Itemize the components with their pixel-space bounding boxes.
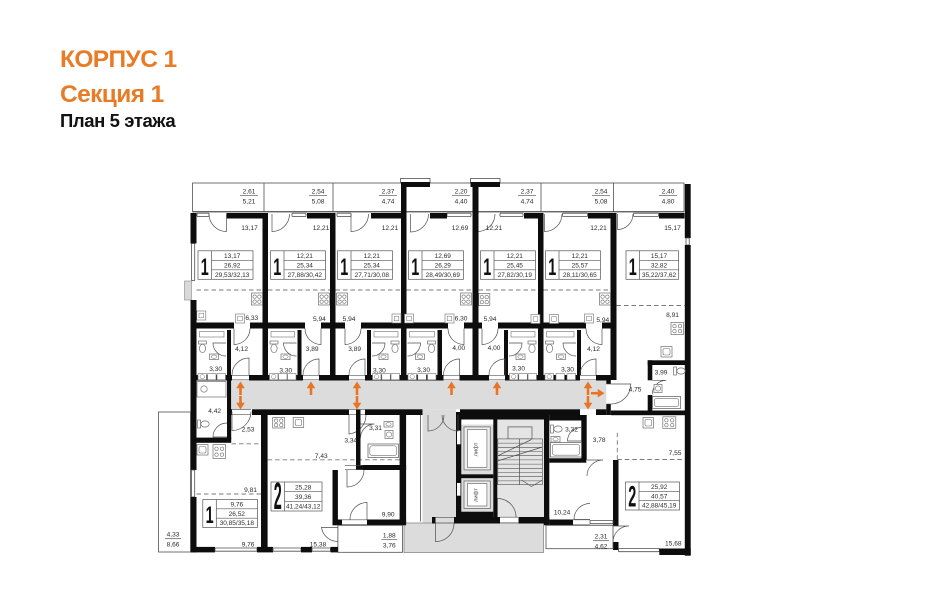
svg-text:1: 1	[483, 254, 491, 281]
svg-text:12,21: 12,21	[297, 253, 314, 260]
svg-text:2,61: 2,61	[243, 189, 256, 196]
svg-text:3,30: 3,30	[209, 366, 222, 373]
svg-text:2,53: 2,53	[242, 427, 255, 434]
svg-text:2,54: 2,54	[312, 189, 325, 196]
svg-text:26,29: 26,29	[435, 262, 452, 269]
svg-text:12,21: 12,21	[313, 225, 330, 232]
svg-text:4,12: 4,12	[235, 346, 248, 353]
svg-text:10,24: 10,24	[554, 510, 571, 517]
svg-text:4,62: 4,62	[595, 544, 608, 551]
svg-text:3,31: 3,31	[369, 425, 382, 432]
svg-text:3,30: 3,30	[561, 366, 574, 373]
svg-text:25,45: 25,45	[507, 262, 524, 269]
svg-text:лифт: лифт	[474, 442, 480, 456]
svg-text:2: 2	[274, 476, 282, 518]
svg-text:4,33: 4,33	[167, 532, 180, 539]
svg-text:25,57: 25,57	[572, 262, 589, 269]
svg-text:4,12: 4,12	[587, 346, 600, 353]
svg-text:15,17: 15,17	[664, 225, 681, 232]
svg-text:41,24/43,12: 41,24/43,12	[286, 504, 321, 511]
svg-text:3,34: 3,34	[344, 438, 357, 445]
svg-text:9,81: 9,81	[244, 487, 257, 494]
svg-text:5,94: 5,94	[596, 317, 609, 324]
svg-text:4,74: 4,74	[382, 199, 395, 206]
svg-text:13,17: 13,17	[241, 225, 258, 232]
svg-text:2,31: 2,31	[595, 534, 608, 541]
svg-text:4,40: 4,40	[455, 199, 468, 206]
svg-text:3,99: 3,99	[655, 370, 668, 377]
svg-text:29,53/32,13: 29,53/32,13	[215, 272, 250, 279]
svg-text:2: 2	[628, 481, 636, 514]
svg-text:27,88/30,42: 27,88/30,42	[288, 272, 323, 279]
svg-text:15,68: 15,68	[665, 541, 682, 548]
svg-text:4,74: 4,74	[521, 199, 534, 206]
svg-text:7,55: 7,55	[669, 450, 682, 457]
svg-text:2,54: 2,54	[595, 189, 608, 196]
svg-text:1: 1	[629, 254, 637, 281]
svg-text:3,78: 3,78	[593, 437, 606, 444]
svg-text:1: 1	[411, 254, 419, 281]
svg-text:2,37: 2,37	[521, 189, 534, 196]
svg-text:1: 1	[548, 254, 556, 281]
svg-text:1,88: 1,88	[383, 533, 396, 540]
svg-text:4,00: 4,00	[488, 345, 501, 352]
svg-text:3,30: 3,30	[417, 367, 430, 374]
svg-text:3,89: 3,89	[348, 346, 361, 353]
svg-text:5,08: 5,08	[595, 199, 608, 206]
svg-text:9,76: 9,76	[230, 501, 243, 508]
svg-text:12,69: 12,69	[452, 225, 469, 232]
svg-text:9,90: 9,90	[382, 512, 395, 519]
svg-text:25,34: 25,34	[364, 262, 381, 269]
svg-text:3,30: 3,30	[512, 366, 525, 373]
svg-text:2,20: 2,20	[455, 189, 468, 196]
svg-text:1: 1	[201, 254, 209, 281]
svg-text:12,21: 12,21	[486, 225, 503, 232]
svg-text:32,82: 32,82	[651, 262, 668, 269]
svg-text:12,21: 12,21	[382, 225, 399, 232]
svg-text:5,94: 5,94	[313, 316, 326, 323]
svg-text:1: 1	[340, 254, 348, 281]
svg-text:5,21: 5,21	[243, 199, 256, 206]
svg-text:12,69: 12,69	[435, 253, 452, 260]
svg-text:40,57: 40,57	[651, 493, 668, 500]
svg-text:25,28: 25,28	[295, 484, 312, 491]
svg-text:39,36: 39,36	[295, 494, 312, 501]
svg-text:3,89: 3,89	[306, 346, 319, 353]
svg-text:26,52: 26,52	[229, 511, 246, 518]
svg-text:4,80: 4,80	[662, 199, 675, 206]
svg-text:4,42: 4,42	[208, 408, 221, 415]
svg-text:5,94: 5,94	[343, 316, 356, 323]
svg-text:2,37: 2,37	[382, 189, 395, 196]
svg-text:8,66: 8,66	[167, 542, 180, 549]
svg-text:25,34: 25,34	[297, 262, 314, 269]
svg-text:2,40: 2,40	[662, 189, 675, 196]
svg-text:4,75: 4,75	[629, 387, 642, 394]
svg-text:6,30: 6,30	[455, 316, 468, 323]
svg-text:28,49/30,69: 28,49/30,69	[426, 272, 461, 279]
svg-text:12,21: 12,21	[507, 253, 524, 260]
svg-text:12,21: 12,21	[590, 225, 607, 232]
svg-text:3,32: 3,32	[565, 427, 578, 434]
svg-text:9,76: 9,76	[242, 542, 255, 549]
svg-text:26,92: 26,92	[224, 262, 241, 269]
svg-text:8,91: 8,91	[666, 312, 679, 319]
svg-text:30,85/35,18: 30,85/35,18	[220, 520, 255, 527]
svg-text:12,21: 12,21	[364, 253, 381, 260]
svg-text:13,17: 13,17	[224, 253, 241, 260]
svg-text:27,82/30,19: 27,82/30,19	[498, 272, 533, 279]
svg-text:3,76: 3,76	[383, 543, 396, 550]
svg-text:42,88/45,19: 42,88/45,19	[642, 503, 677, 510]
svg-text:5,08: 5,08	[312, 199, 325, 206]
svg-text:6,33: 6,33	[245, 315, 258, 322]
svg-text:1: 1	[273, 254, 281, 281]
svg-text:4,00: 4,00	[452, 345, 465, 352]
svg-text:35,22/37,62: 35,22/37,62	[642, 272, 677, 279]
svg-text:7,43: 7,43	[315, 453, 328, 460]
svg-text:лифт: лифт	[474, 488, 480, 502]
svg-text:25,92: 25,92	[651, 484, 668, 491]
svg-text:27,71/30,08: 27,71/30,08	[355, 272, 390, 279]
svg-text:15,17: 15,17	[651, 253, 668, 260]
svg-text:1: 1	[206, 502, 214, 529]
svg-text:12,21: 12,21	[572, 253, 589, 260]
svg-text:28,11/30,65: 28,11/30,65	[563, 272, 597, 279]
svg-text:15,38: 15,38	[310, 542, 327, 549]
svg-text:5,94: 5,94	[484, 316, 497, 323]
